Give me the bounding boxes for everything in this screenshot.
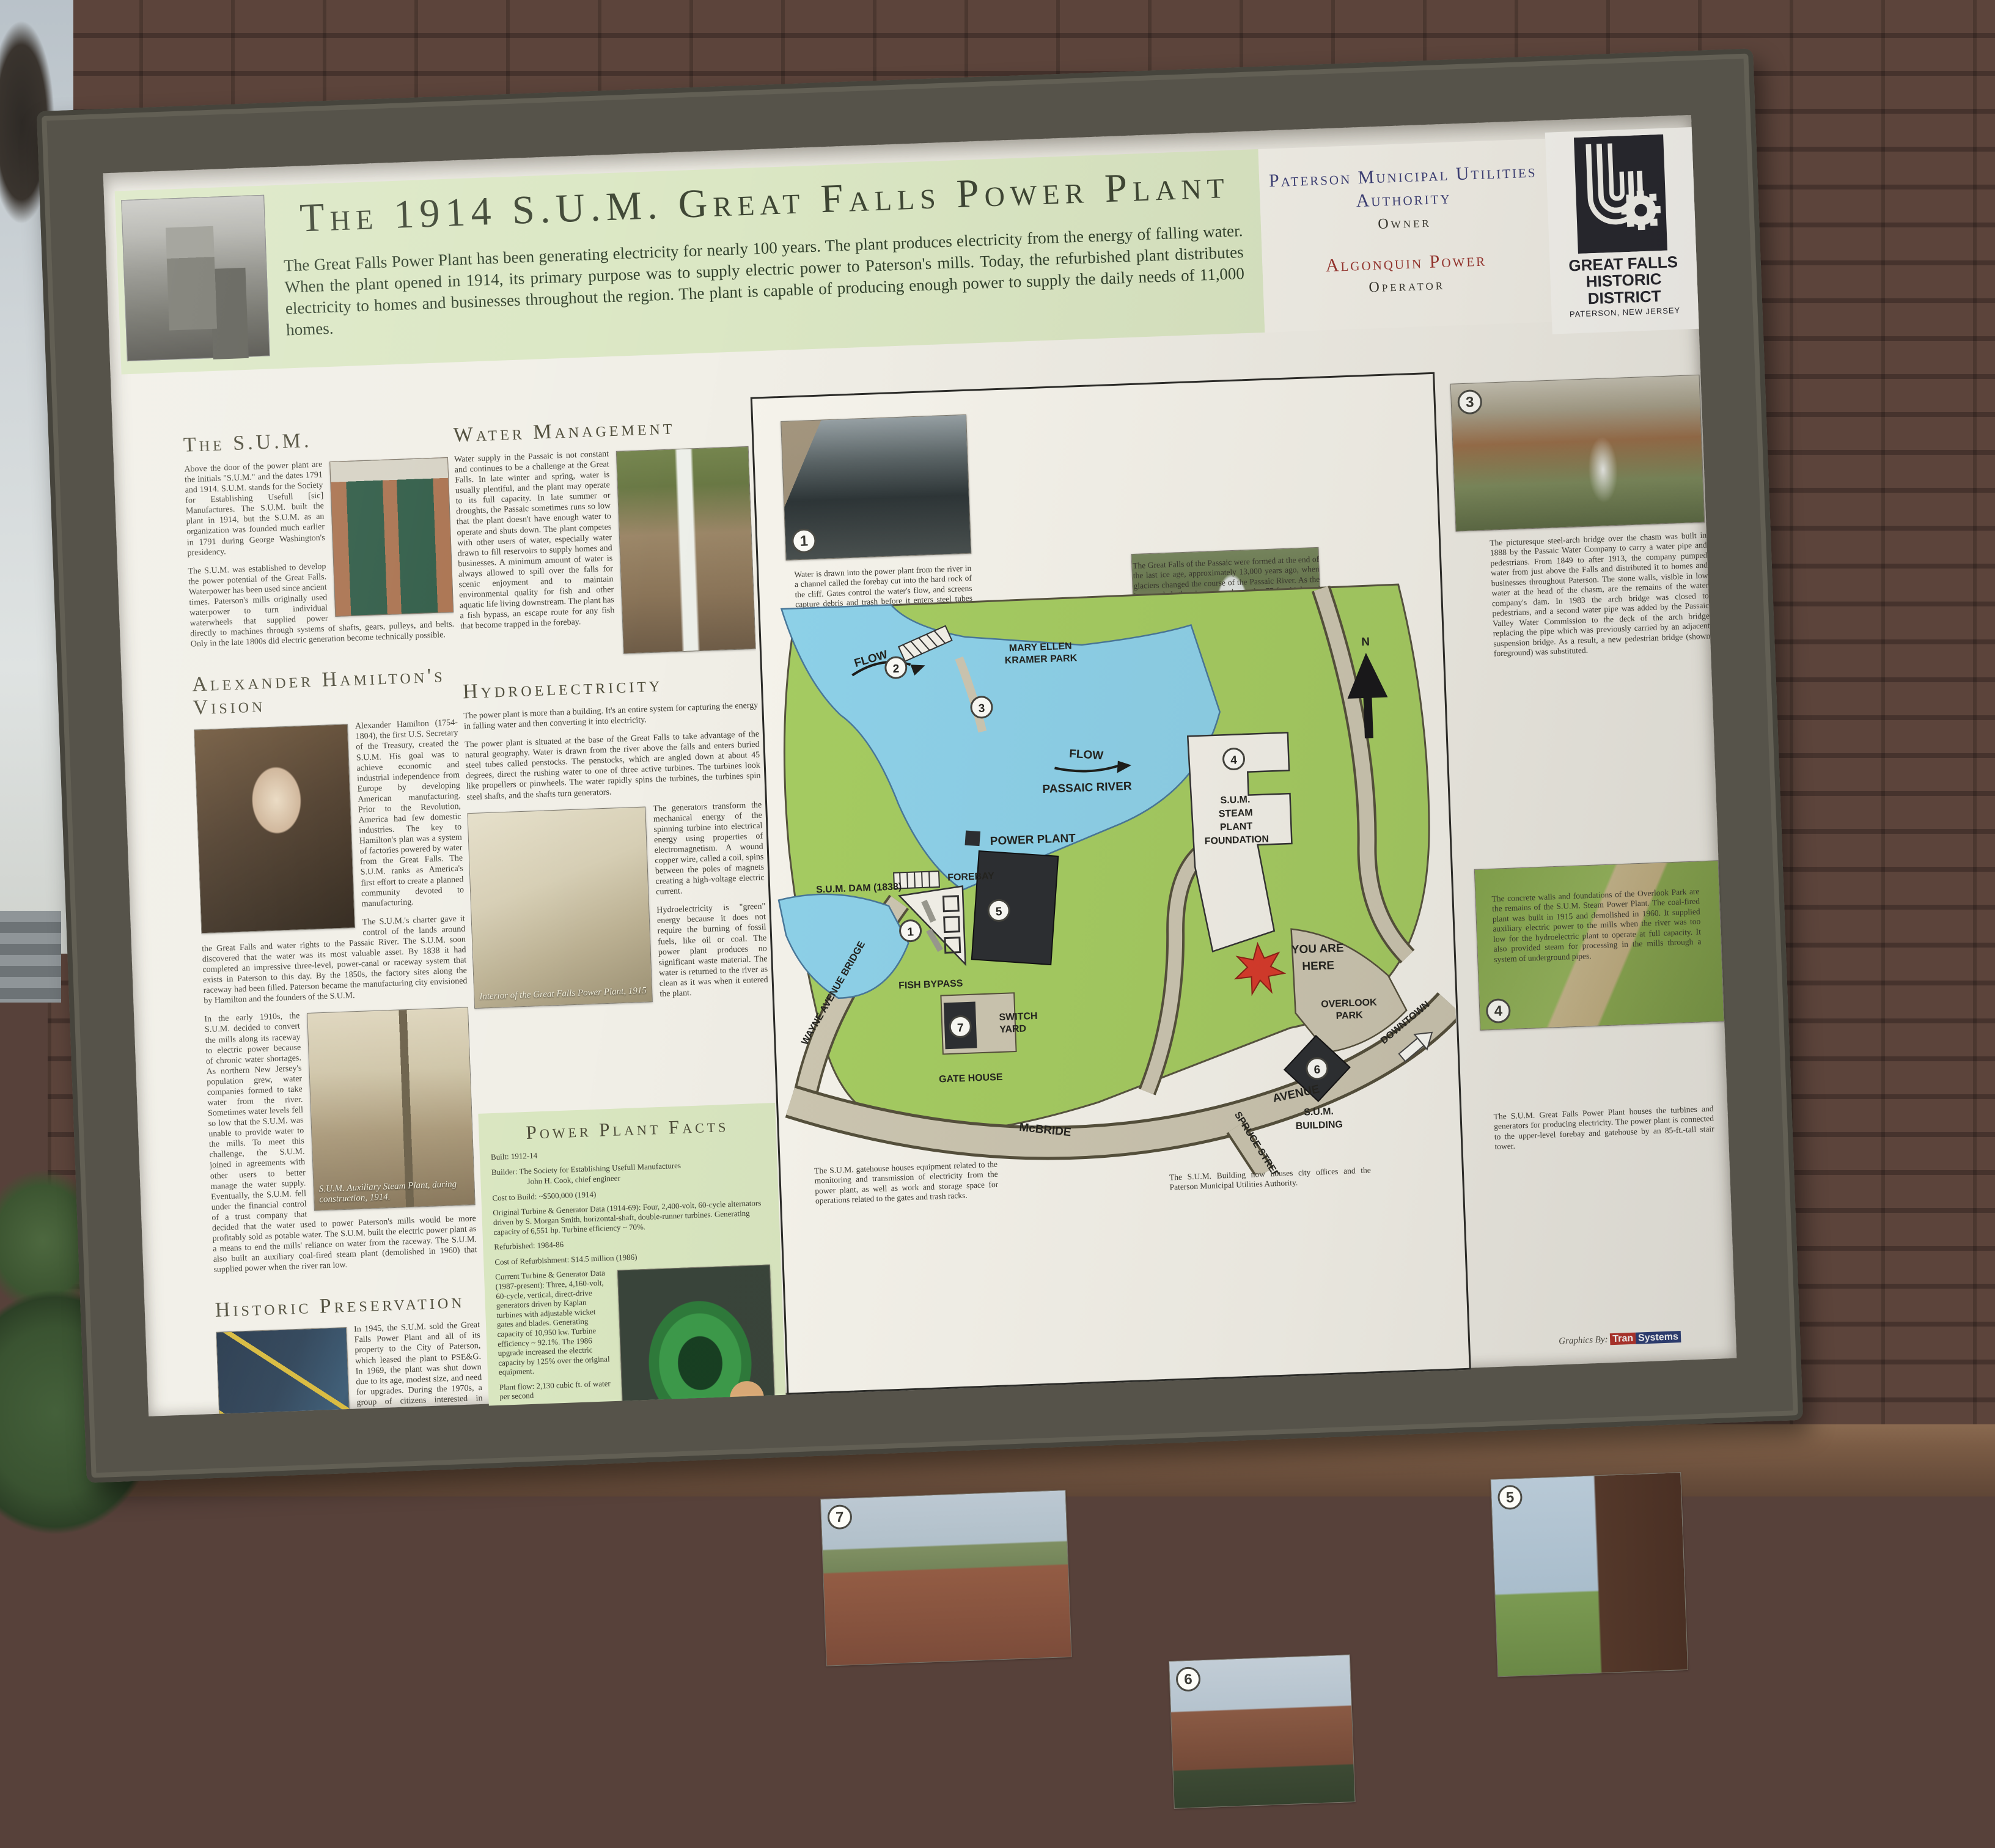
map-caption-4: The concrete walls and foundations of th…: [1491, 886, 1702, 965]
map-marker: 6: [1306, 1058, 1328, 1079]
map-label: S.U.M.: [1304, 1106, 1334, 1118]
map-label: SWITCH: [999, 1011, 1038, 1023]
hydro-paragraph: The power plant is more than a building.…: [463, 701, 759, 732]
photo-steam-plant-construction: S.U.M. Auxiliary Steam Plant, during con…: [307, 1007, 476, 1211]
photo-number-badge: 1: [792, 528, 817, 553]
photo-sum-building: 6: [1169, 1654, 1356, 1809]
section-heading-water: Water Management: [453, 413, 748, 447]
map-marker: 5: [988, 900, 1010, 921]
outdoor-scene: The 1914 S.U.M. Great Falls Power Plant …: [0, 0, 1995, 1496]
map-caption-7: The S.U.M. gatehouse houses equipment re…: [814, 1160, 999, 1207]
map-label: STEAM: [1219, 808, 1253, 819]
credits-firm-logo: Systems: [1636, 1331, 1681, 1344]
map-marker: 3: [971, 696, 992, 718]
map-label: S.U.M.: [1220, 795, 1250, 806]
credits-firm-logo: Tran: [1610, 1333, 1636, 1346]
sign-panel: The 1914 S.U.M. Great Falls Power Plant …: [103, 115, 1737, 1416]
photo-steel-arch-bridge: 3: [1450, 375, 1705, 532]
photo-number-badge: 7: [827, 1504, 852, 1530]
map-marker: 4: [1223, 748, 1244, 770]
svg-text:3: 3: [978, 702, 985, 715]
interpretive-sign-frame: The 1914 S.U.M. Great Falls Power Plant …: [37, 48, 1803, 1482]
site-map: N MARY ELLEN KRAMER PARK FLOW FLOW PASSA…: [763, 582, 1461, 1192]
svg-text:5: 5: [996, 905, 1003, 918]
photo-number-badge: 4: [1486, 998, 1511, 1023]
operator-name: Algonquin Power: [1262, 248, 1550, 279]
credits: Graphics By: TranSystems: [1559, 1331, 1681, 1347]
guardrail: [0, 911, 61, 1003]
photo-stair-tower: 5: [1490, 1472, 1688, 1677]
great-falls-district-logo: GREAT FALLS HISTORIC DISTRICT PATERSON, …: [1545, 127, 1699, 334]
map-label: OVERLOOK: [1321, 997, 1377, 1009]
logo-line2: HISTORIC DISTRICT: [1550, 270, 1698, 308]
section-heading-hamilton: Alexander Hamilton's Vision: [192, 664, 457, 720]
photo-number-badge: 6: [1175, 1666, 1200, 1692]
map-label: PARK: [1336, 1010, 1363, 1022]
fact-item: Original Turbine & Generator Data (1914-…: [493, 1198, 768, 1237]
map-label: HERE: [1302, 959, 1334, 973]
map-marker: 1: [900, 920, 921, 941]
map-panel: 1 Water is drawn into the power plant fr…: [751, 372, 1471, 1395]
svg-text:1: 1: [907, 926, 914, 938]
column-left: The S.U.M. Above the door of the power p…: [182, 408, 482, 1414]
credits-label: Graphics By:: [1559, 1334, 1608, 1346]
svg-text:6: 6: [1313, 1064, 1320, 1077]
hydro-paragraph: The power plant is situated at the base …: [465, 729, 761, 803]
map-caption-3: The picturesque steel-arch bridge over t…: [1490, 531, 1711, 660]
photo-sum-doorway: [329, 457, 454, 617]
svg-text:2: 2: [892, 663, 899, 676]
photo-plant-interior-modern: [216, 1327, 354, 1413]
photo-gatehouse: 7: [820, 1490, 1072, 1666]
photo-power-plant-historic: [121, 195, 270, 361]
map-label: FOREBAY: [947, 871, 994, 883]
owner-operator-box: Paterson Municipal Utilities Authority O…: [1258, 139, 1552, 333]
section-heading-hydro: Hydroelectricity: [462, 670, 757, 704]
svg-text:N: N: [1361, 636, 1370, 649]
photo-number-badge: 5: [1497, 1485, 1523, 1510]
photo-hamilton-portrait: [194, 724, 355, 934]
map-label: FLOW: [1069, 748, 1104, 763]
photo-plant-interior-1915: Interior of the Great Falls Power Plant,…: [467, 806, 653, 1008]
map-label: PLANT: [1220, 821, 1253, 833]
section-heading-preservation: Historic Preservation: [215, 1289, 479, 1322]
owner-name: Paterson Municipal Utilities Authority: [1259, 160, 1548, 216]
photo-number-badge: 3: [1457, 389, 1482, 414]
waterfall-gear-icon: [1573, 134, 1669, 254]
photo-caption: Interior of the Great Falls Power Plant,…: [479, 986, 647, 1003]
photo-great-falls-closeup: [616, 446, 756, 654]
photo-forebay-channel: 1: [781, 414, 971, 561]
map-label: YARD: [999, 1023, 1026, 1035]
power-plant-facts-box: Power Plant Facts Built: 1912-14 Builder…: [478, 1103, 785, 1405]
map-caption-5: The S.U.M. Great Falls Power Plant house…: [1493, 1104, 1714, 1152]
map-label: BUILDING: [1295, 1119, 1343, 1132]
section-heading-sum: The S.U.M.: [183, 424, 447, 457]
svg-text:4: 4: [1230, 754, 1238, 767]
photo-turbine-rotor: [617, 1265, 777, 1406]
svg-text:7: 7: [957, 1022, 964, 1034]
map-marker: 2: [885, 657, 906, 679]
photo-caption: S.U.M. Auxiliary Steam Plant, during con…: [318, 1179, 469, 1205]
map-label: YOU ARE: [1291, 942, 1344, 957]
map-marker: 7: [950, 1016, 971, 1037]
facts-heading: Power Plant Facts: [490, 1113, 765, 1145]
